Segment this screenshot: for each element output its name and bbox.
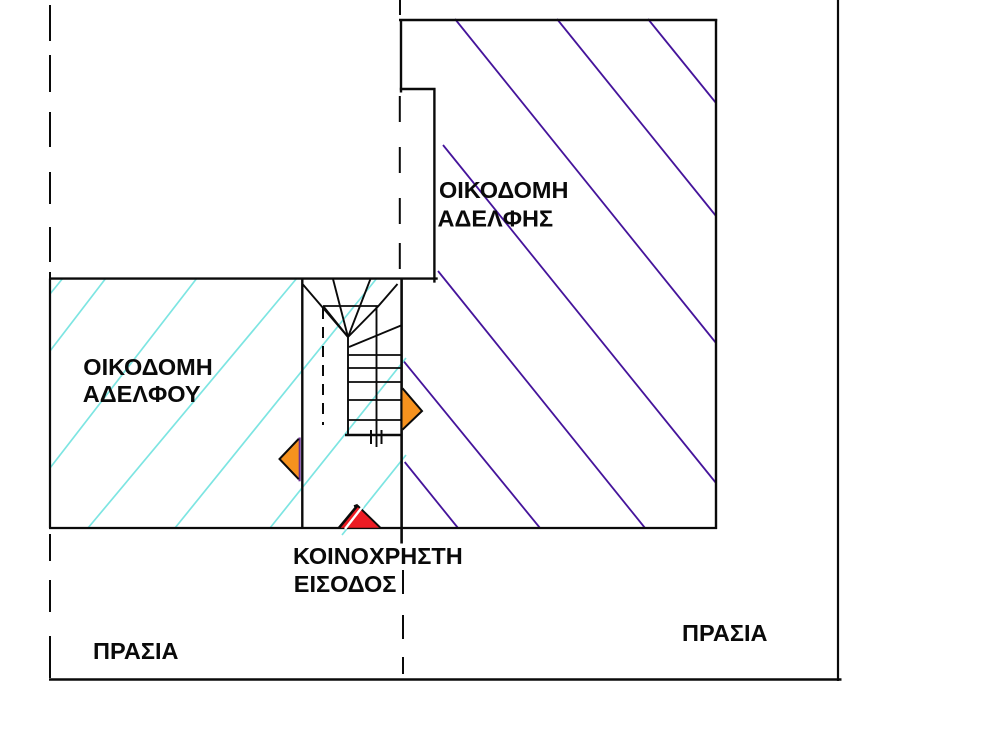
svg-text:ΕΙΣΟΔΟΣ: ΕΙΣΟΔΟΣ xyxy=(294,571,397,597)
svg-text:ΠΡΑΣΙΑ: ΠΡΑΣΙΑ xyxy=(93,638,179,664)
svg-text:ΠΡΑΣΙΑ: ΠΡΑΣΙΑ xyxy=(682,620,768,646)
svg-text:ΑΔΕΛΦΟΥ: ΑΔΕΛΦΟΥ xyxy=(83,381,201,407)
svg-text:ΑΔΕΛΦΗΣ: ΑΔΕΛΦΗΣ xyxy=(438,206,554,232)
svg-text:ΚΟΙΝΟΧΡΗΣΤΗ: ΚΟΙΝΟΧΡΗΣΤΗ xyxy=(293,543,463,569)
svg-text:ΟΙΚΟΔΟΜΗ: ΟΙΚΟΔΟΜΗ xyxy=(83,354,212,380)
svg-text:ΟΙΚΟΔΟΜΗ: ΟΙΚΟΔΟΜΗ xyxy=(439,177,568,203)
